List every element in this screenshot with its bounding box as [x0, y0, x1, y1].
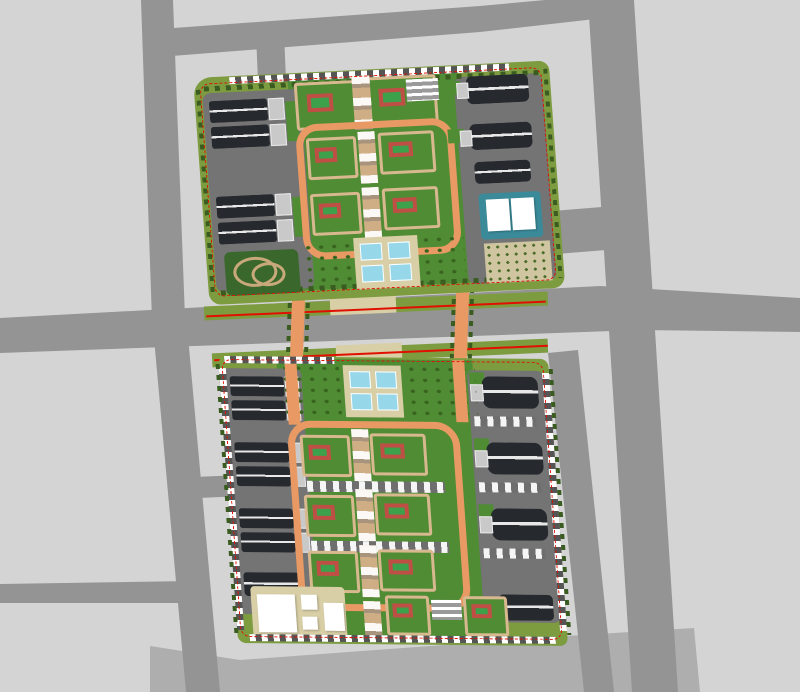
residential-compounds: [0, 0, 800, 692]
north-compound: [193, 61, 565, 306]
site-boundary: [199, 67, 556, 297]
site-boundary: [221, 359, 562, 640]
site-plan: [0, 0, 800, 692]
south-compound: [218, 356, 568, 646]
